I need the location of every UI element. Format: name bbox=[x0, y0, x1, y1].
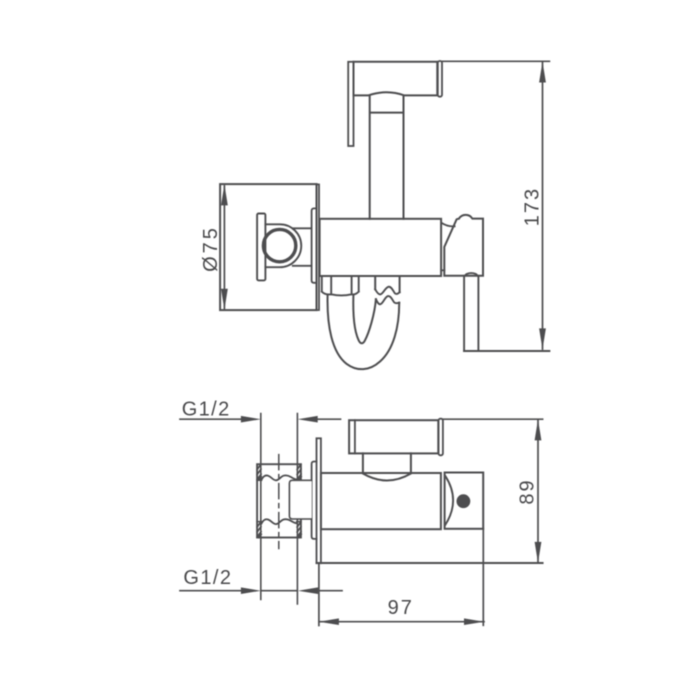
svg-text:G1/2: G1/2 bbox=[183, 567, 232, 589]
svg-text:Ø75: Ø75 bbox=[200, 225, 222, 272]
svg-text:G1/2: G1/2 bbox=[182, 399, 231, 421]
svg-text:97: 97 bbox=[388, 597, 414, 619]
svg-text:173: 173 bbox=[522, 187, 544, 226]
svg-text:89: 89 bbox=[517, 478, 539, 504]
